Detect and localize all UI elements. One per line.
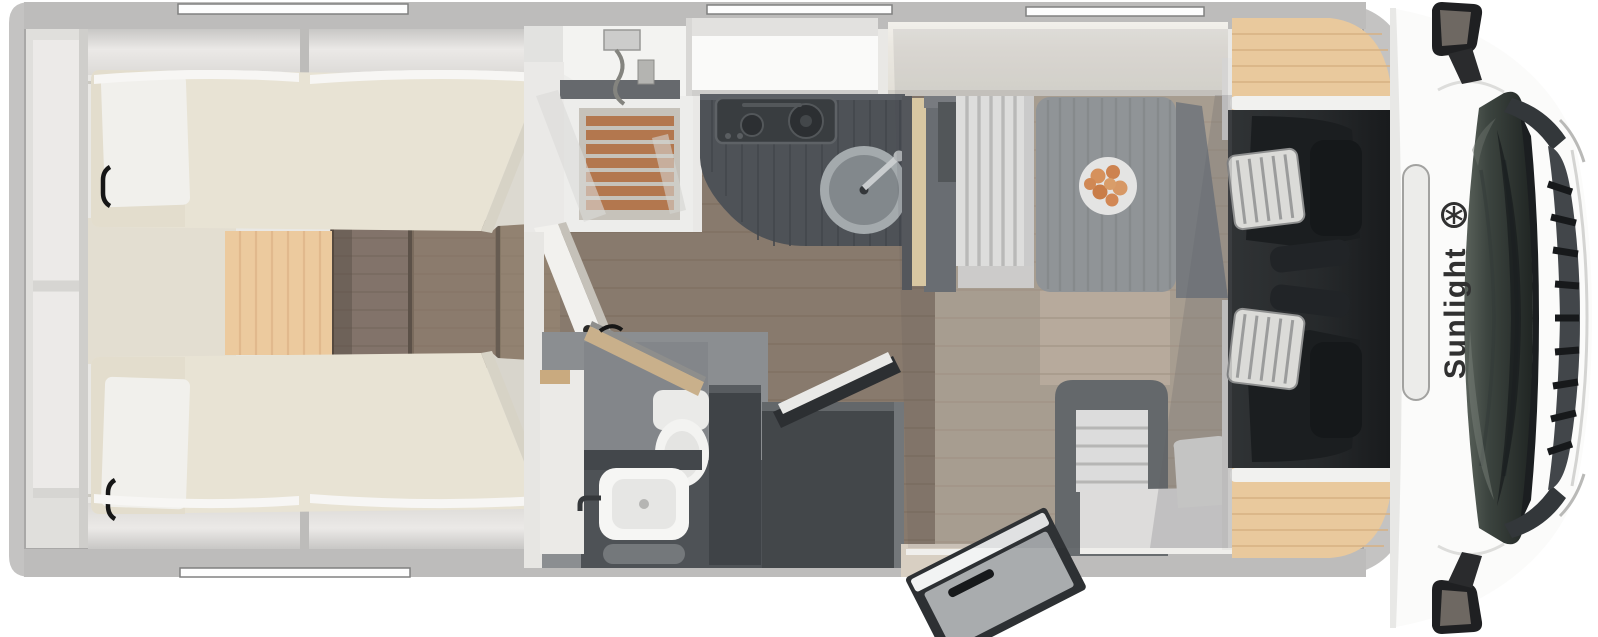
svg-text:Sunlight: Sunlight: [1439, 247, 1472, 379]
